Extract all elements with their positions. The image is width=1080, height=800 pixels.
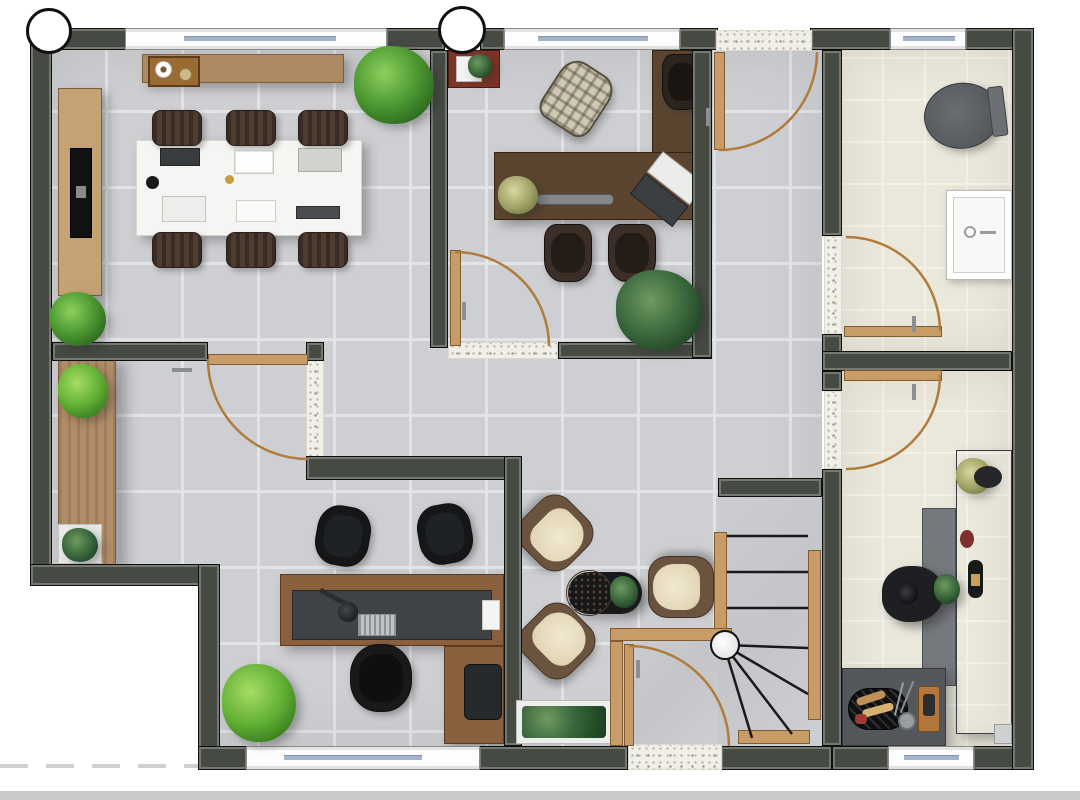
desk-lamp-head bbox=[338, 602, 358, 622]
office-guest-chair bbox=[544, 224, 592, 282]
wall-south-d bbox=[832, 746, 890, 770]
conference-chair bbox=[226, 232, 276, 268]
wall-bathroom-west-upper bbox=[822, 50, 842, 236]
door-handle bbox=[462, 302, 466, 320]
door-leaf-conference bbox=[208, 354, 308, 365]
wall-north-d bbox=[678, 28, 718, 50]
window-glass bbox=[903, 36, 955, 41]
table-item-laptop bbox=[160, 148, 200, 166]
hall-plant-large bbox=[222, 664, 296, 742]
door-leaf-entry bbox=[624, 644, 634, 746]
window-kitchen bbox=[888, 746, 974, 770]
sw-document bbox=[482, 600, 500, 630]
table-item-laptop bbox=[162, 196, 206, 222]
table-plant bbox=[610, 576, 638, 608]
toilet bbox=[920, 77, 1016, 155]
wall-east bbox=[1012, 28, 1034, 770]
window-glass bbox=[284, 755, 422, 760]
mosaic-tray bbox=[566, 570, 612, 616]
threshold-corridor-north bbox=[716, 30, 812, 51]
window-office bbox=[504, 28, 680, 50]
bench-plant bbox=[58, 364, 108, 418]
conference-chair bbox=[152, 232, 202, 268]
wall-west bbox=[30, 28, 52, 586]
door-leaf-kitchen bbox=[844, 370, 942, 381]
conference-chair bbox=[298, 232, 348, 268]
chair-seat bbox=[615, 233, 648, 273]
lounge-armchair bbox=[648, 556, 714, 618]
window-glass bbox=[904, 755, 959, 760]
stair-newel-circle bbox=[710, 630, 740, 660]
person-head bbox=[896, 582, 918, 604]
grill-food bbox=[855, 714, 867, 724]
planter-greenery bbox=[522, 706, 606, 738]
conference-plant bbox=[50, 292, 106, 346]
bottle-label bbox=[971, 574, 980, 586]
chair-seat bbox=[551, 233, 584, 273]
exterior-cutout bbox=[0, 586, 198, 770]
wall-kitchen-west-jamb bbox=[822, 371, 842, 391]
floor-staircase bbox=[716, 496, 822, 746]
table-item-papers bbox=[236, 200, 276, 222]
stair-stringer-left bbox=[714, 532, 727, 634]
table-item-phone bbox=[225, 175, 234, 184]
washbasin bbox=[946, 190, 1012, 280]
sw-office-chair bbox=[350, 644, 412, 712]
table-item-mic bbox=[146, 176, 159, 189]
door-handle bbox=[912, 316, 916, 332]
island-berries bbox=[960, 530, 974, 548]
chair-seat bbox=[321, 512, 365, 560]
table-item-keyboard bbox=[296, 206, 340, 219]
window-bathroom bbox=[890, 28, 966, 50]
wall-step-horizontal bbox=[30, 564, 220, 586]
window-office-sw bbox=[246, 746, 480, 770]
desk-speaker-bar bbox=[536, 194, 614, 205]
conference-chair bbox=[226, 110, 276, 146]
coffee-cup bbox=[155, 61, 172, 78]
wall-conference-jamb bbox=[306, 342, 324, 361]
grid-bubble bbox=[26, 8, 72, 54]
threshold-kitchen-door bbox=[824, 391, 842, 469]
conference-chair bbox=[152, 110, 202, 146]
threshold-hall-spine bbox=[306, 360, 324, 458]
conference-chair bbox=[298, 110, 348, 146]
chair-seat bbox=[423, 510, 467, 558]
wall-south-a bbox=[198, 746, 248, 770]
wall-south-c bbox=[720, 746, 832, 770]
table-item-notebook bbox=[234, 150, 274, 174]
table-item-laptop bbox=[298, 148, 342, 172]
office-cabinet-plant bbox=[468, 54, 492, 78]
grid-bubble bbox=[438, 6, 486, 54]
wall-kitchen-west bbox=[822, 469, 842, 746]
wall-north-e bbox=[810, 28, 892, 50]
basin-spout bbox=[980, 231, 996, 234]
door-leaf-corridor bbox=[714, 52, 725, 150]
door-handle bbox=[172, 368, 192, 372]
island-plate bbox=[974, 466, 1002, 488]
office-monstera bbox=[616, 270, 702, 350]
sw-file-cabinet bbox=[464, 664, 502, 720]
planter-box bbox=[516, 700, 612, 744]
basin-faucet bbox=[964, 226, 976, 238]
floor-plan bbox=[0, 0, 1080, 800]
door-handle bbox=[706, 108, 710, 126]
kitchen-island bbox=[956, 450, 1012, 734]
chair-seat bbox=[359, 654, 402, 702]
wall-stair-north bbox=[718, 478, 822, 497]
wall-south-b bbox=[478, 746, 628, 770]
sw-keyboard bbox=[358, 614, 396, 636]
threshold-entry bbox=[628, 744, 722, 770]
desk-plant bbox=[498, 176, 538, 214]
tv-logo-dot bbox=[76, 186, 86, 198]
stair-stringer-right bbox=[808, 550, 821, 720]
door-leaf-office bbox=[450, 250, 461, 346]
floor-vestibule bbox=[622, 640, 718, 746]
island-corner-block bbox=[994, 724, 1012, 744]
door-handle bbox=[912, 384, 916, 400]
bottom-edge-strip bbox=[0, 791, 1080, 800]
door-handle bbox=[636, 660, 640, 678]
wall-bathroom-south bbox=[822, 351, 1012, 371]
person-herbs bbox=[934, 574, 960, 604]
window-glass bbox=[184, 36, 336, 41]
vestibule-trim-vertical bbox=[610, 641, 623, 746]
stair-bottom-tread bbox=[738, 730, 810, 744]
window-conference bbox=[125, 28, 387, 50]
pot-plant bbox=[62, 528, 98, 562]
kitchen-pot bbox=[898, 712, 916, 730]
wall-step-vertical bbox=[198, 564, 220, 770]
chair-seat bbox=[653, 564, 699, 611]
board-item bbox=[923, 694, 935, 716]
wall-office-sw-north bbox=[306, 456, 522, 480]
door-leaf-bathroom bbox=[844, 326, 942, 337]
window-glass bbox=[538, 36, 648, 41]
threshold-office-door bbox=[448, 342, 558, 359]
conference-ficus bbox=[354, 46, 434, 124]
coffee-plate bbox=[179, 68, 192, 81]
threshold-bathroom-door bbox=[824, 236, 842, 334]
wall-office-south bbox=[558, 342, 712, 359]
